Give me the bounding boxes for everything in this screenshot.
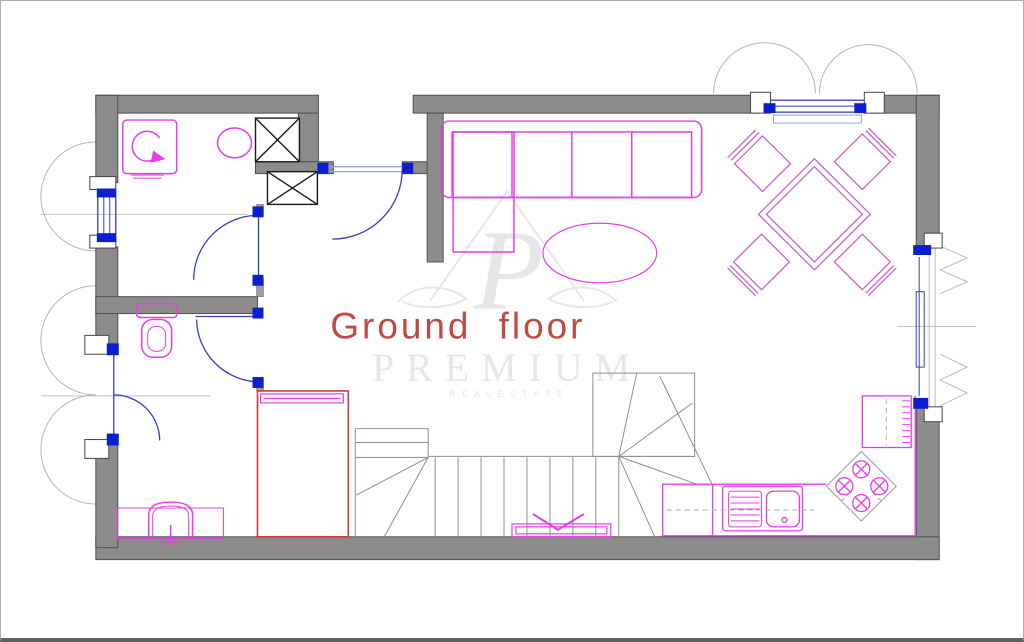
- burner: [853, 461, 870, 478]
- bottom-wall: [96, 537, 939, 560]
- page-title: Ground floor: [330, 305, 585, 346]
- understair-closet: [257, 391, 348, 537]
- floor-plan-svg: P PREMIUM R E A L E S T A T E: [1, 1, 1023, 638]
- hinge: [107, 434, 119, 446]
- stair-left-steps: [355, 429, 428, 458]
- rug-oval: [543, 223, 657, 283]
- sink-drain: [782, 517, 787, 522]
- dining-set: [728, 128, 897, 296]
- window-block: [913, 245, 931, 255]
- hinge: [253, 308, 264, 319]
- fridge-coil-hatch: [902, 401, 910, 443]
- left-window-shutter-arc: [41, 142, 96, 251]
- hinge: [402, 163, 413, 174]
- right-window-frame: [924, 407, 942, 422]
- shaft-box-upper: [256, 118, 300, 162]
- dining-chair-ne: [834, 128, 896, 190]
- shower: [123, 120, 177, 178]
- french-door-leaf-arc-left: [714, 43, 816, 94]
- window-frame: [90, 177, 116, 190]
- watermark-right-swirl: [549, 288, 617, 308]
- zigzag-shutter-lower: [940, 354, 967, 406]
- premium-watermark: P PREMIUM R E A L E S T A T E: [372, 192, 642, 399]
- left-wall-upper: [96, 95, 118, 182]
- dining-chair-sw: [728, 234, 790, 296]
- window-block: [97, 233, 116, 242]
- stair-right-winders: [619, 373, 712, 537]
- burner: [853, 495, 870, 512]
- burner: [836, 478, 853, 495]
- dining-table: [759, 159, 871, 270]
- right-wall-upper: [916, 95, 939, 246]
- hob-outline: [826, 451, 896, 520]
- stair-direction-arrow: [533, 514, 584, 530]
- french-door-sill: [769, 100, 865, 123]
- closet-shelf: [260, 394, 343, 403]
- dining-chair-se: [834, 234, 896, 296]
- burner: [871, 478, 888, 495]
- hinge: [317, 163, 328, 174]
- door-frame: [85, 335, 109, 354]
- watermark-subtitle: R E A L E S T A T E: [449, 389, 565, 399]
- door-frame: [85, 440, 109, 459]
- hob: [826, 451, 896, 520]
- kitchen: [663, 396, 916, 536]
- wc-door: [196, 317, 261, 382]
- watermark-name: PREMIUM: [372, 346, 642, 390]
- hinge: [253, 377, 264, 388]
- kitchen-dashed-lines: [667, 399, 887, 510]
- sill-block: [764, 103, 776, 113]
- stair-risers: [435, 456, 619, 536]
- dining-chair-nw: [728, 130, 791, 192]
- window-block: [97, 189, 116, 198]
- bathroom-right-wall: [298, 113, 318, 162]
- round-washbasin: [218, 128, 252, 158]
- plan-frame: P PREMIUM R E A L E S T A T E: [0, 0, 1024, 642]
- bathroom-door: [194, 214, 259, 279]
- top-wall-mid: [413, 95, 759, 113]
- french-door-frame: [864, 92, 884, 113]
- hinge: [253, 206, 264, 217]
- top-wall-left: [96, 95, 319, 113]
- hall-living-door: [329, 167, 402, 239]
- hinge: [253, 275, 264, 286]
- shaft-box-lower: [267, 172, 317, 205]
- sill-block: [854, 103, 866, 113]
- sink-drainer: [729, 491, 762, 527]
- french-door-leaf-arc-right: [819, 45, 917, 94]
- hinge: [107, 343, 119, 355]
- zigzag-shutter-upper: [940, 246, 967, 294]
- window-block: [913, 398, 928, 409]
